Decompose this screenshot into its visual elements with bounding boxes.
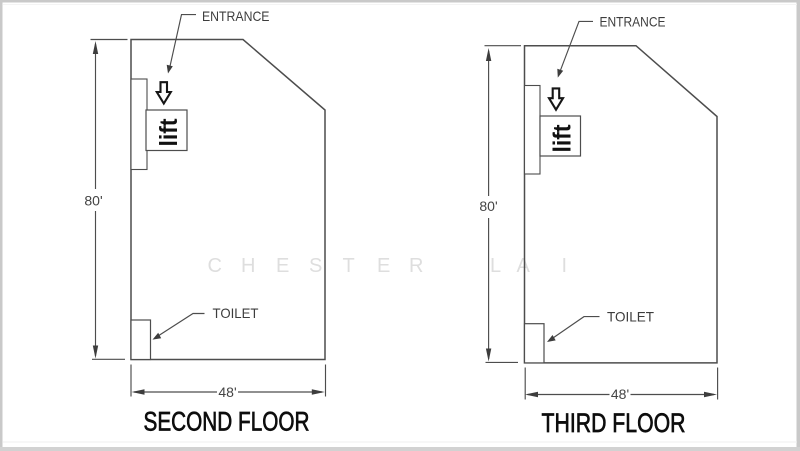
svg-text:ENTRANCE: ENTRANCE [202,8,270,24]
svg-text:80': 80' [479,198,497,214]
svg-text:E: E [377,255,390,277]
svg-text:80': 80' [84,192,102,208]
svg-text:48': 48' [611,386,629,402]
svg-text:THIRD FLOOR: THIRD FLOOR [542,408,686,438]
svg-text:lift: lift [549,124,577,153]
svg-text:I: I [562,255,568,277]
svg-text:A: A [517,255,531,277]
svg-text:48': 48' [218,384,236,400]
svg-text:SECOND FLOOR: SECOND FLOOR [144,407,310,437]
svg-text:TOILET: TOILET [607,309,654,325]
svg-text:H: H [241,255,255,277]
svg-text:TOILET: TOILET [213,305,259,321]
svg-text:E: E [276,255,289,277]
svg-text:L: L [490,255,501,277]
svg-text:R: R [409,255,423,277]
svg-text:T: T [343,255,355,277]
svg-text:C: C [208,255,222,277]
svg-text:lift: lift [155,118,183,147]
svg-text:ENTRANCE: ENTRANCE [600,13,666,29]
svg-text:S: S [309,255,322,277]
